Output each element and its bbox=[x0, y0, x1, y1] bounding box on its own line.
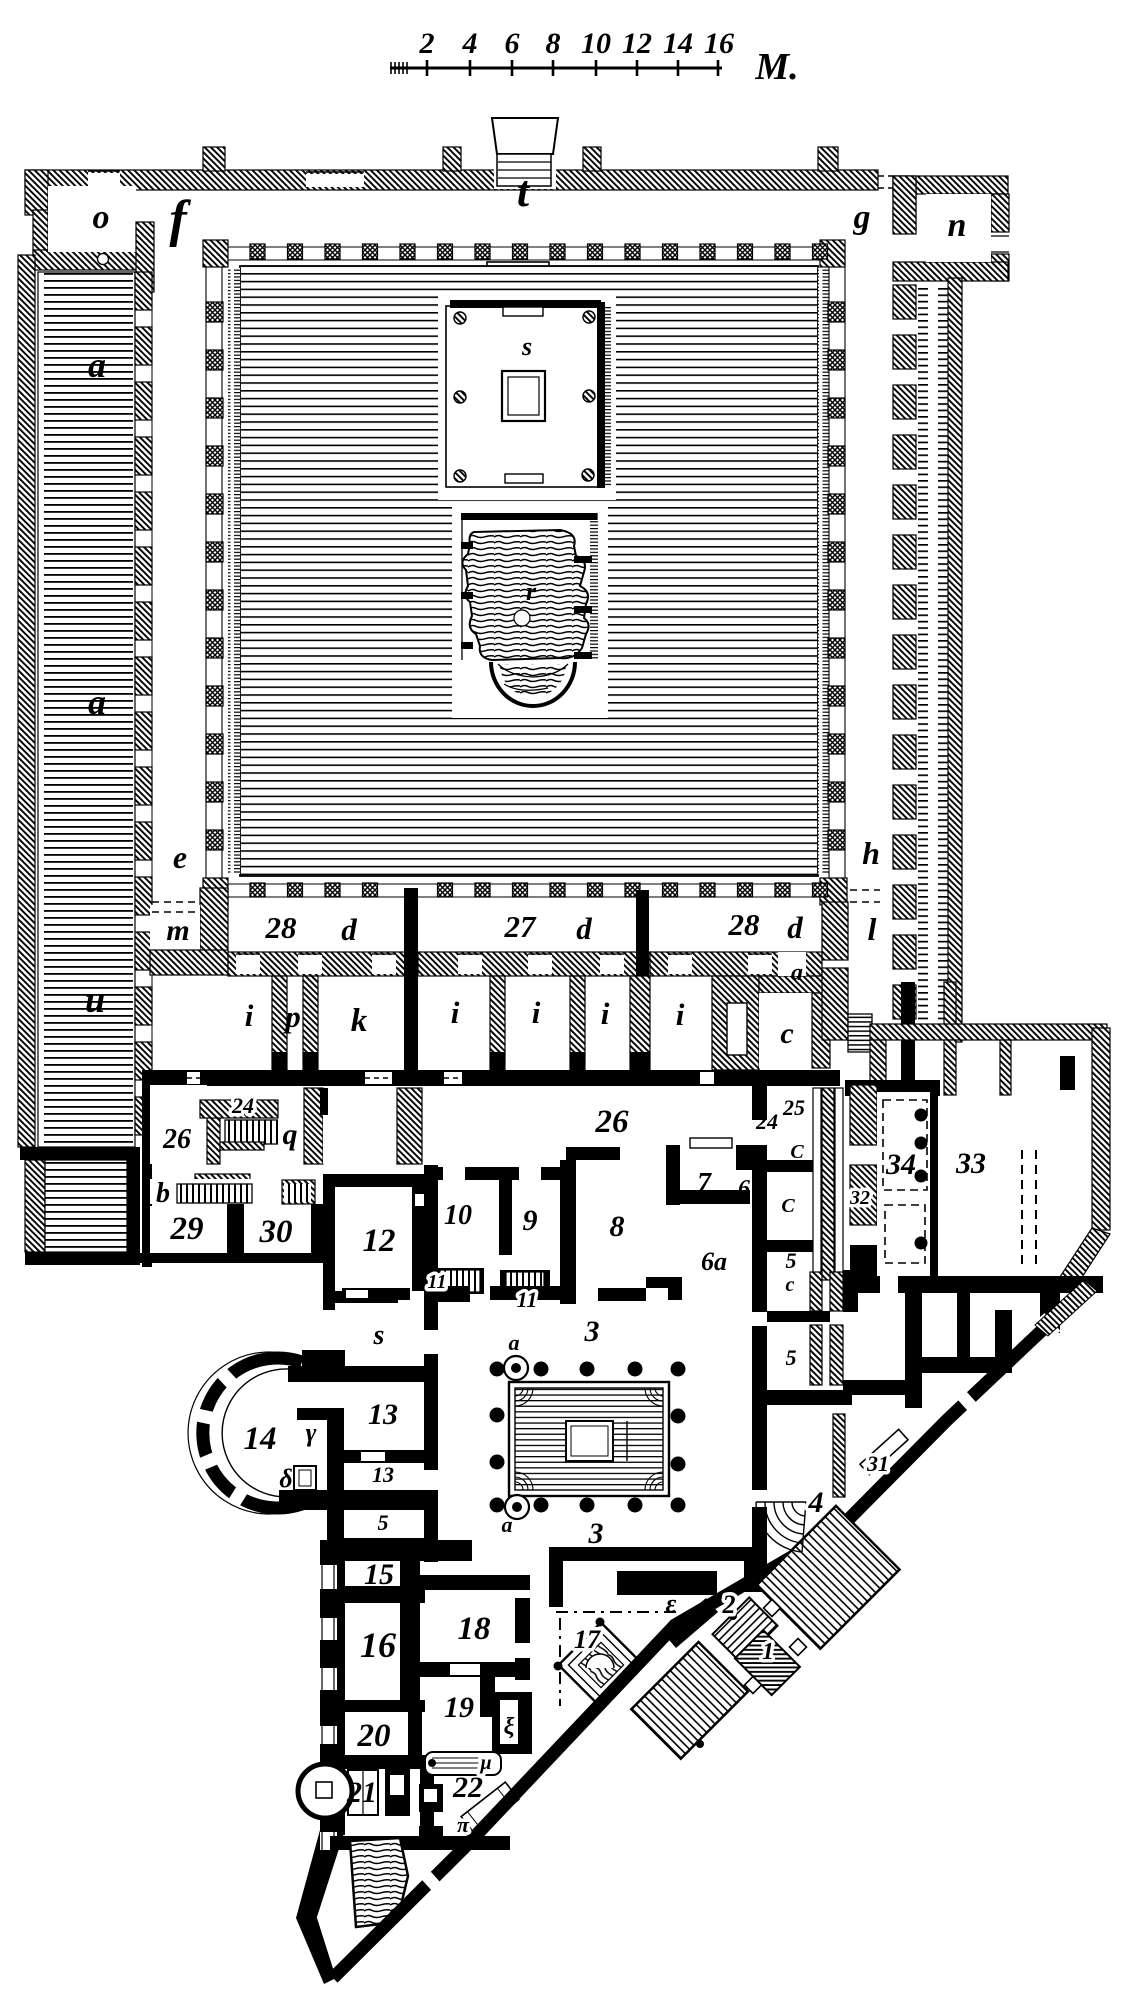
svg-text:9: 9 bbox=[523, 1204, 538, 1237]
svg-text:12: 12 bbox=[622, 27, 652, 60]
svg-text:2: 2 bbox=[722, 1590, 736, 1619]
svg-text:d: d bbox=[787, 910, 803, 945]
svg-text:C: C bbox=[781, 1195, 795, 1217]
svg-text:o: o bbox=[93, 199, 110, 236]
svg-text:11: 11 bbox=[428, 1271, 447, 1293]
svg-text:k: k bbox=[351, 1003, 368, 1039]
svg-text:t: t bbox=[517, 167, 531, 216]
svg-text:s: s bbox=[373, 1320, 385, 1351]
svg-text:g: g bbox=[853, 199, 871, 236]
svg-text:a: a bbox=[502, 1512, 513, 1537]
svg-text:γ: γ bbox=[306, 1418, 317, 1447]
svg-text:12: 12 bbox=[363, 1223, 396, 1259]
svg-text:6a: 6a bbox=[701, 1247, 727, 1276]
svg-text:μ: μ bbox=[479, 1752, 491, 1774]
svg-text:24: 24 bbox=[755, 1109, 778, 1134]
svg-text:i: i bbox=[676, 997, 685, 1032]
svg-text:C: C bbox=[790, 1141, 804, 1163]
svg-text:14: 14 bbox=[663, 27, 693, 60]
svg-text:e: e bbox=[173, 839, 187, 875]
svg-text:d: d bbox=[576, 911, 592, 946]
svg-text:25: 25 bbox=[782, 1095, 805, 1120]
svg-text:14: 14 bbox=[244, 1421, 277, 1457]
svg-text:11: 11 bbox=[517, 1287, 538, 1312]
svg-text:4: 4 bbox=[462, 27, 478, 60]
svg-text:3: 3 bbox=[588, 1517, 604, 1550]
svg-text:26: 26 bbox=[162, 1124, 191, 1155]
svg-text:a: a bbox=[791, 960, 803, 986]
svg-text:d: d bbox=[341, 912, 357, 947]
svg-text:a: a bbox=[88, 682, 106, 722]
svg-text:l: l bbox=[868, 911, 877, 947]
svg-text:c: c bbox=[780, 1017, 793, 1050]
svg-text:17: 17 bbox=[574, 1625, 601, 1654]
svg-text:h: h bbox=[862, 835, 880, 871]
svg-text:7: 7 bbox=[697, 1168, 712, 1199]
svg-text:n: n bbox=[948, 207, 967, 244]
svg-text:a: a bbox=[88, 345, 106, 385]
svg-text:4: 4 bbox=[808, 1486, 824, 1519]
svg-text:28: 28 bbox=[728, 907, 761, 942]
svg-text:i: i bbox=[532, 995, 541, 1030]
svg-text:28: 28 bbox=[265, 910, 298, 945]
svg-text:2: 2 bbox=[419, 27, 435, 60]
svg-text:18: 18 bbox=[458, 1611, 491, 1647]
svg-text:15: 15 bbox=[364, 1558, 394, 1591]
svg-text:5: 5 bbox=[786, 1345, 797, 1370]
svg-text:i: i bbox=[451, 995, 460, 1030]
svg-text:q: q bbox=[283, 1118, 298, 1151]
svg-text:21: 21 bbox=[346, 1776, 377, 1809]
svg-text:33: 33 bbox=[955, 1147, 986, 1180]
svg-text:r: r bbox=[526, 577, 537, 606]
svg-text:b: b bbox=[156, 1178, 170, 1209]
svg-text:19: 19 bbox=[444, 1691, 474, 1724]
svg-text:34: 34 bbox=[885, 1148, 916, 1181]
svg-text:5: 5 bbox=[378, 1510, 389, 1535]
svg-text:13: 13 bbox=[368, 1398, 398, 1431]
svg-text:a: a bbox=[509, 1330, 520, 1355]
svg-text:p: p bbox=[282, 999, 301, 1034]
svg-text:6: 6 bbox=[505, 27, 520, 60]
svg-text:c: c bbox=[786, 1274, 795, 1296]
svg-text:m: m bbox=[166, 914, 189, 947]
svg-text:1: 1 bbox=[762, 1639, 774, 1665]
svg-text:π: π bbox=[457, 1812, 470, 1837]
svg-text:ε: ε bbox=[666, 1589, 677, 1618]
svg-text:10: 10 bbox=[444, 1200, 472, 1231]
svg-text:i: i bbox=[245, 998, 254, 1033]
svg-text:30: 30 bbox=[259, 1214, 293, 1250]
svg-text:20: 20 bbox=[357, 1718, 391, 1754]
svg-text:16: 16 bbox=[360, 1625, 396, 1665]
svg-text:8: 8 bbox=[546, 27, 561, 60]
svg-text:8: 8 bbox=[610, 1210, 625, 1243]
svg-text:29: 29 bbox=[170, 1211, 204, 1247]
svg-text:s: s bbox=[521, 332, 532, 361]
svg-text:6: 6 bbox=[738, 1176, 750, 1202]
svg-text:16: 16 bbox=[704, 27, 734, 60]
svg-text:i: i bbox=[601, 996, 610, 1031]
svg-text:26: 26 bbox=[595, 1104, 630, 1140]
svg-text:13: 13 bbox=[372, 1462, 394, 1487]
svg-text:u: u bbox=[85, 980, 105, 1020]
svg-text:5: 5 bbox=[786, 1248, 797, 1273]
svg-text:3: 3 bbox=[584, 1315, 600, 1348]
svg-text:22: 22 bbox=[452, 1771, 483, 1804]
svg-text:M.: M. bbox=[754, 46, 798, 88]
svg-text:27: 27 bbox=[504, 909, 538, 944]
svg-text:ξ: ξ bbox=[504, 1714, 515, 1740]
svg-text:31: 31 bbox=[866, 1451, 889, 1476]
svg-text:δ: δ bbox=[279, 1464, 292, 1493]
svg-text:24: 24 bbox=[231, 1093, 254, 1118]
svg-text:10: 10 bbox=[581, 27, 611, 60]
svg-text:32: 32 bbox=[849, 1187, 870, 1209]
